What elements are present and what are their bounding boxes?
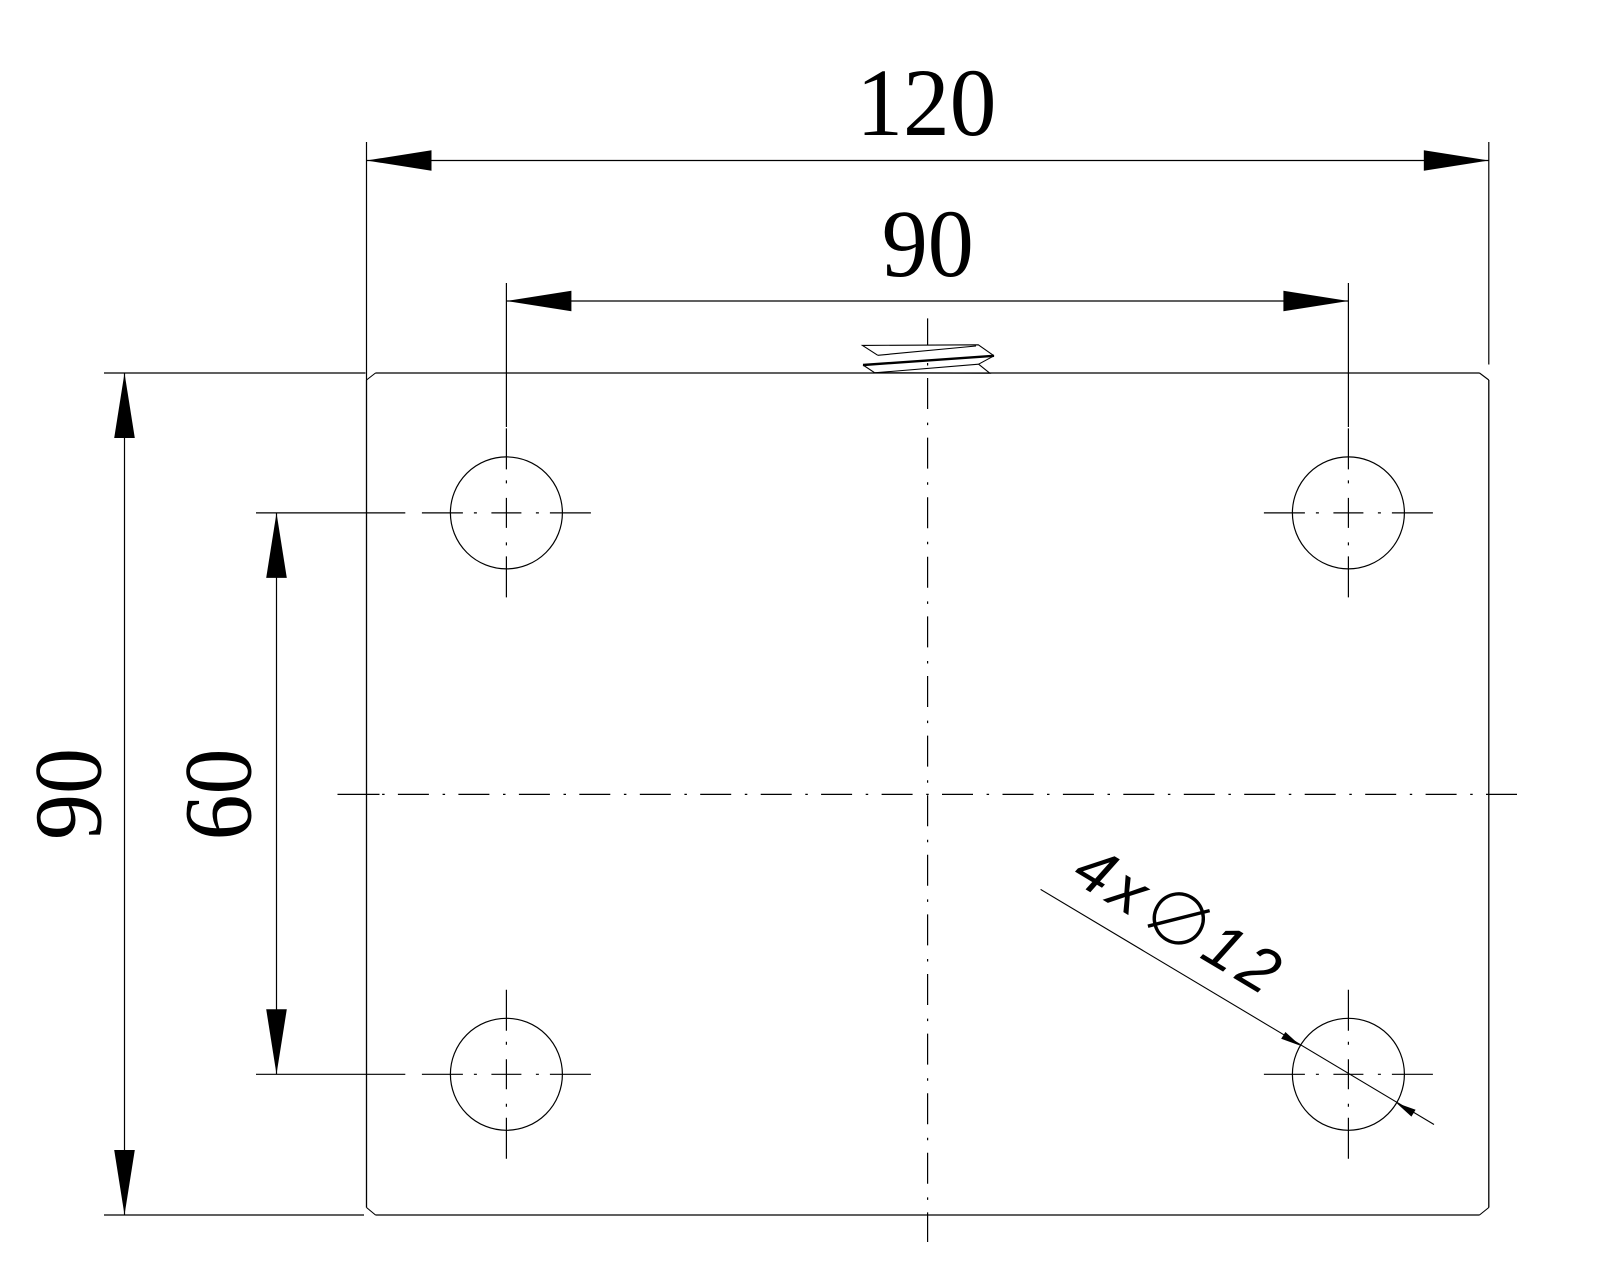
- svg-text:60: 60: [164, 749, 271, 841]
- svg-text:90: 90: [882, 190, 974, 297]
- svg-text:90: 90: [15, 748, 122, 840]
- svg-text:120: 120: [856, 49, 996, 156]
